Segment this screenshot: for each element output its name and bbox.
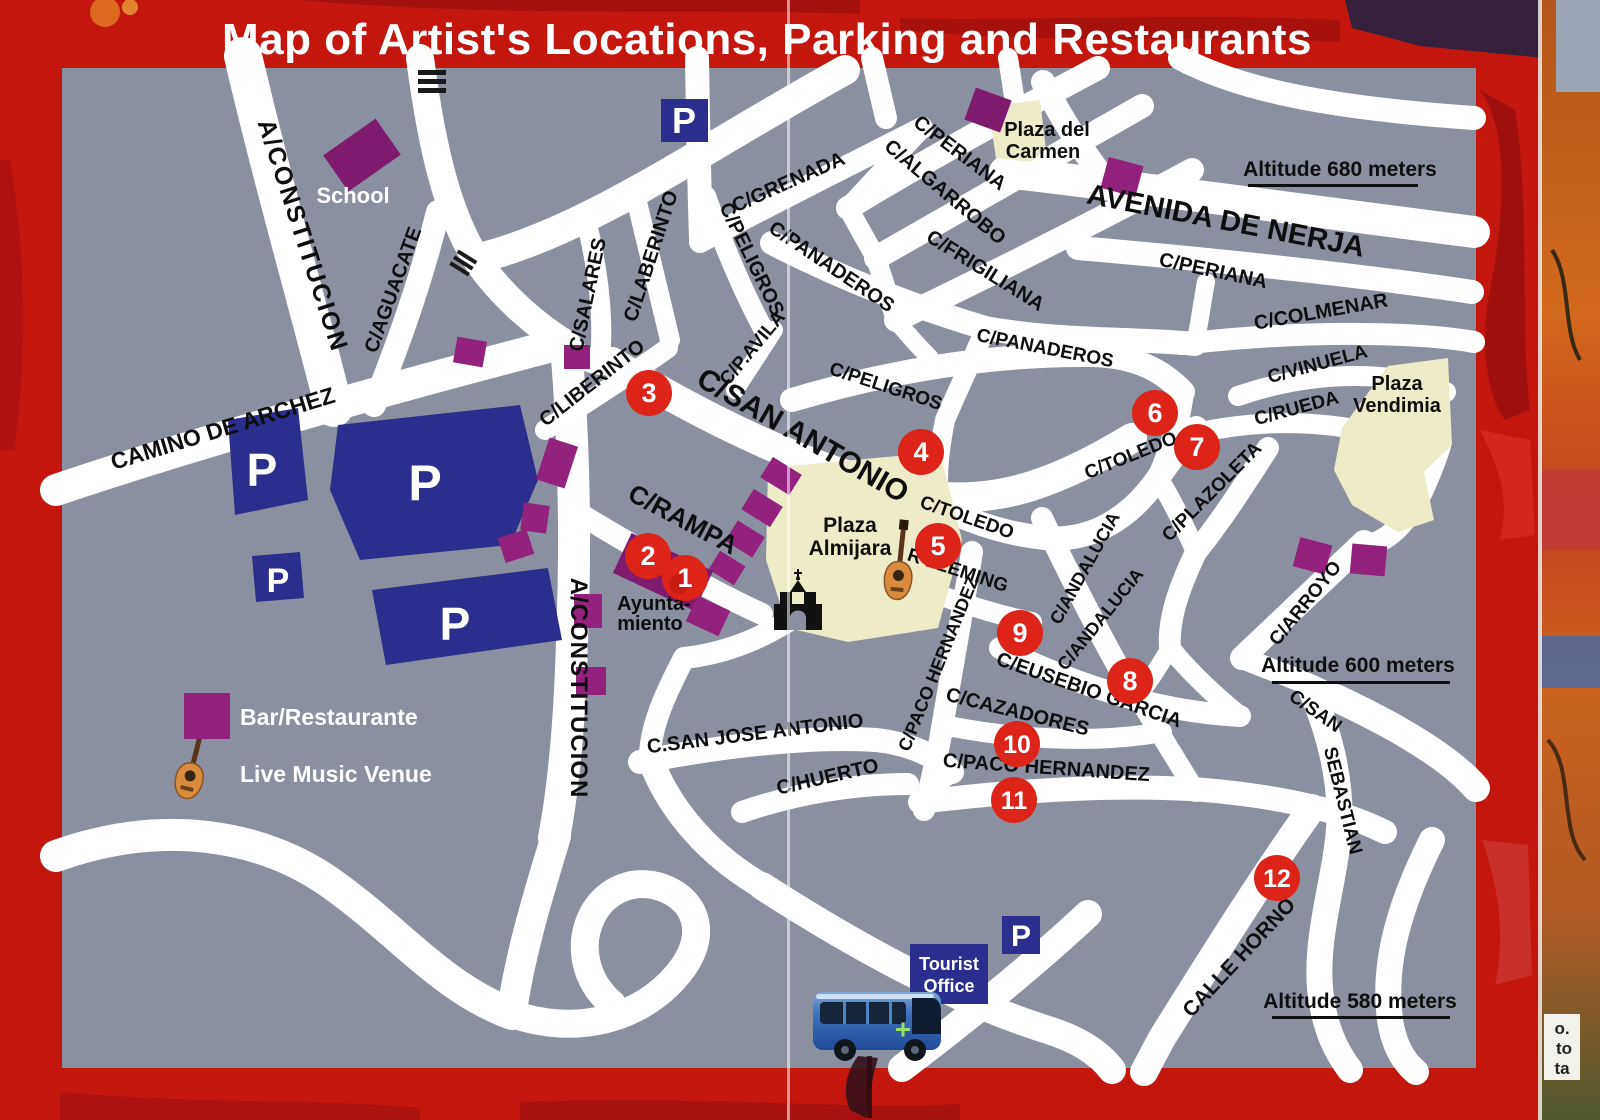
altitude-580: Altitude 580 meters: [1263, 990, 1457, 1013]
location-marker-8: 8: [1107, 658, 1153, 704]
location-marker-10: 10: [994, 721, 1040, 767]
photo-torn-edge: o. to ta: [1538, 0, 1600, 1120]
map-title: Map of Artist's Locations, Parking and R…: [222, 15, 1312, 64]
altitude-680: Altitude 680 meters: [1243, 158, 1437, 181]
parking-letter: P: [267, 562, 290, 600]
stairs-icon: [418, 70, 446, 93]
marker-number: 8: [1122, 666, 1137, 696]
paint-drip: [867, 1056, 872, 1118]
street: [697, 58, 701, 238]
location-marker-3: 3: [626, 370, 672, 416]
altitude-600: Altitude 600 meters: [1261, 654, 1455, 677]
bar-restaurante-marker: [520, 502, 550, 533]
marker-number: 7: [1189, 432, 1204, 462]
marker-number: 6: [1147, 398, 1162, 428]
street: [872, 58, 886, 118]
plaza-del-carmen-label: Plaza del: [1004, 119, 1090, 141]
location-marker-4: 4: [898, 429, 944, 475]
parking-letter: P: [408, 455, 441, 511]
plaza-vendimia-label: Vendimia: [1353, 395, 1442, 417]
bar-restaurante-marker: [453, 337, 487, 368]
painting-patch: [1540, 470, 1600, 550]
marker-number: 2: [640, 541, 655, 571]
parking-letter: P: [1011, 920, 1031, 953]
marker-number: 4: [913, 437, 928, 467]
bus-plus-mark: [902, 1023, 905, 1037]
plaza-del-carmen-label: Carmen: [1006, 141, 1080, 163]
plaza-vendimia-label: Plaza: [1371, 373, 1423, 395]
marker-number: 10: [1003, 731, 1031, 759]
altitude-600-underline: [1272, 681, 1450, 684]
legend-music-label: Live Music Venue: [240, 761, 432, 787]
plaza-almijara-label: Almijara: [809, 537, 892, 560]
scanned-tourist-map: P P P P P P: [0, 0, 1600, 1120]
altitude-580-underline: [1272, 1016, 1450, 1019]
bar-restaurante-marker: [1350, 543, 1387, 576]
marker-number: 3: [641, 378, 656, 408]
altitude-680-underline: [1248, 184, 1418, 187]
parking-letter: P: [247, 444, 278, 496]
fragment-text: ta: [1554, 1059, 1570, 1078]
location-marker-5: 5: [915, 523, 961, 569]
plaza-almijara-label: Plaza: [823, 514, 877, 537]
location-marker-11: 11: [991, 777, 1037, 823]
marker-number: 12: [1263, 865, 1291, 893]
marker-number: 11: [1001, 787, 1028, 815]
painting-patch: [1540, 636, 1600, 688]
legend-bar-label: Bar/Restaurante: [240, 704, 418, 730]
parking-sign-tourist-office: P: [1002, 916, 1040, 954]
parking-letter: P: [440, 598, 471, 650]
parking-sign-north: P: [661, 99, 708, 142]
location-marker-6: 6: [1132, 390, 1178, 436]
street: [1182, 334, 1474, 344]
map-fold-line: [787, 0, 790, 1120]
location-marker-7: 7: [1174, 424, 1220, 470]
location-marker-9: 9: [997, 610, 1043, 656]
school-label: School: [316, 183, 389, 208]
ayuntamiento-label: miento: [617, 613, 683, 635]
painting-patch: [1556, 0, 1600, 92]
fragment-text: to: [1556, 1039, 1572, 1058]
fragment-text: o.: [1554, 1019, 1569, 1038]
location-marker-2: 2: [625, 533, 671, 579]
photo-edge-text-fragment: o. to ta: [1544, 1014, 1580, 1080]
parking-letter: P: [672, 100, 696, 141]
location-marker-12: 12: [1254, 855, 1300, 901]
marker-number: 9: [1012, 618, 1027, 648]
legend-bar-swatch: [184, 693, 230, 739]
photo-edge-line: [1538, 0, 1542, 1120]
street-label: A/CONSTITUCION: [565, 578, 592, 799]
tourist-office-label: Tourist: [919, 954, 979, 974]
marker-number: 5: [930, 531, 945, 561]
painting-strip: [1540, 0, 1600, 1120]
marker-number: 1: [677, 563, 692, 593]
